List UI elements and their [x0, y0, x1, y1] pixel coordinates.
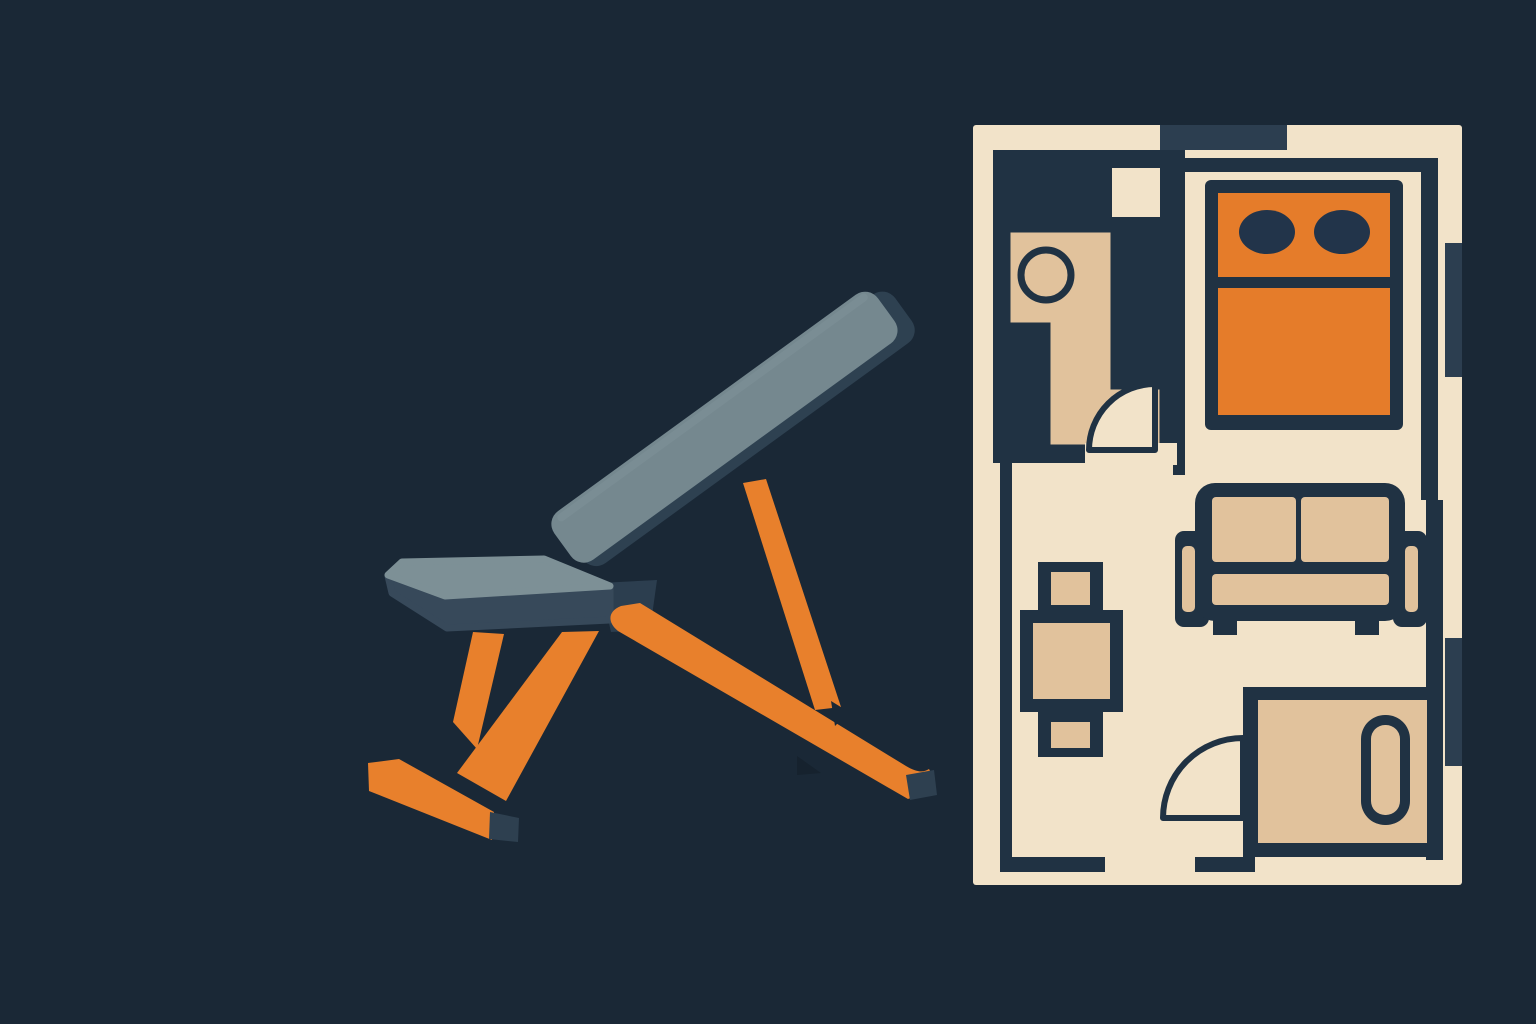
sofa-armrest-inset-right [1405, 546, 1418, 612]
sofa [1175, 483, 1427, 635]
window-top [1160, 125, 1287, 150]
bathroom-window-square [1112, 168, 1160, 217]
bed-pillow-left [1239, 210, 1295, 254]
bench-back-pad-highlight [556, 292, 870, 523]
illustration-canvas: Flat vector illustration of an adjustabl… [0, 0, 1536, 1024]
window-right-upper [1445, 243, 1462, 377]
bench-rail-end-cap [906, 770, 937, 800]
sofa-leg-right [1355, 619, 1379, 635]
sofa-back-cushion-right [1301, 497, 1389, 562]
wall-left [1000, 463, 1012, 872]
floor-plan [973, 125, 1462, 885]
bed-mattress [1218, 288, 1390, 415]
sofa-armrest-inset-left [1182, 546, 1195, 612]
scene-svg: Flat vector illustration of an adjustabl… [0, 0, 1536, 1024]
study-room [1243, 687, 1437, 857]
bench-seat-pad [388, 559, 610, 596]
bed-pillow-right [1314, 210, 1370, 254]
wall-bottom-right-segment [1195, 857, 1255, 872]
window-right-lower [1445, 638, 1462, 766]
wall-bedroom-top [1185, 158, 1438, 172]
sofa-leg-left [1213, 619, 1237, 635]
sofa-seat-cushion [1212, 574, 1389, 605]
study-pill-chair [1371, 725, 1400, 815]
bench-back-pad [545, 285, 904, 569]
bench-rail-shadow [797, 756, 821, 775]
wall-bedroom-right [1421, 158, 1438, 500]
sofa-back-cushion-left [1212, 497, 1296, 562]
wall-bottom-left-segment [1000, 857, 1105, 872]
bench-back-pad-group [545, 277, 921, 577]
table-top [1033, 623, 1110, 699]
bathroom-sink [1021, 250, 1071, 300]
bench-rear-base-rail [610, 603, 935, 799]
bench-front-foot-cap [489, 812, 519, 842]
chair-bottom-seat [1051, 722, 1090, 748]
weight-bench-illustration [368, 277, 937, 842]
wall-bedroom-left [1173, 150, 1185, 475]
chair-top-seat [1051, 572, 1090, 605]
